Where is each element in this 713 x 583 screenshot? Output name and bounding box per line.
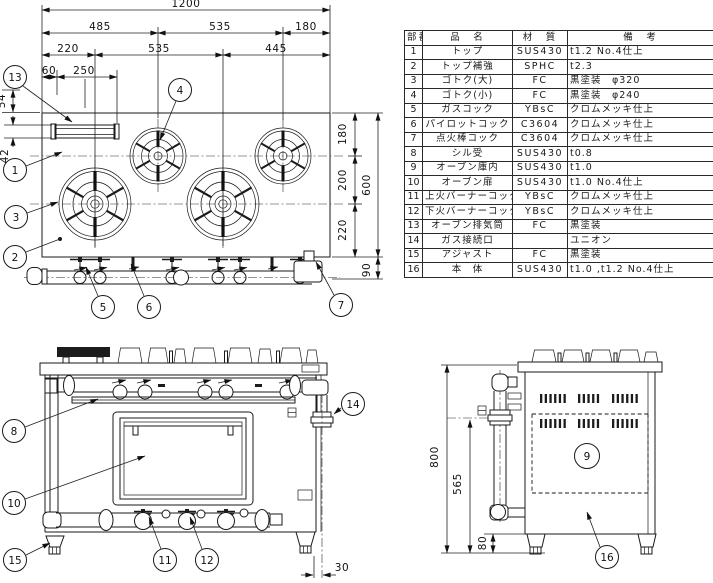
cell-no: 16	[405, 263, 423, 278]
cell-no: 11	[405, 190, 423, 205]
cell-no: 6	[405, 118, 423, 133]
callout-16: 16	[587, 512, 619, 569]
cell-material: SPHC	[513, 60, 568, 75]
manifold-end-cap	[27, 268, 42, 285]
callout-3: 3	[5, 202, 59, 229]
table-row: 13オーブン排気筒FC黒塗装	[405, 219, 713, 234]
parts-table: 部番 品 名 材 質 備 考 1トップSUS430t1.2 No.4仕上2トップ…	[404, 30, 713, 278]
table-row: 1トップSUS430t1.2 No.4仕上	[405, 45, 713, 60]
cell-no: 5	[405, 103, 423, 118]
front-top-slab	[40, 363, 327, 375]
dim-depth-200: 200	[337, 169, 349, 191]
cell-remarks: t1.2 No.4仕上	[568, 45, 713, 60]
cell-no: 14	[405, 234, 423, 249]
front-manifold	[45, 376, 317, 400]
side-legs	[527, 534, 656, 554]
front-view-dimensions: 30	[301, 556, 349, 578]
cell-material: FC	[513, 248, 568, 263]
front-bottom-rail	[56, 509, 282, 531]
table-row: 11上火バーナーコックYBsCクロムメッキ仕上	[405, 190, 713, 205]
table-row: 6パイロットコックC3604クロムメッキ仕上	[405, 118, 713, 133]
callout-15-number: 15	[8, 555, 21, 567]
cell-name: パイロットコック	[423, 118, 513, 133]
cell-remarks: クロムメッキ仕上	[568, 103, 713, 118]
cell-remarks: クロムメッキ仕上	[568, 205, 713, 220]
sill-receiver	[72, 397, 295, 403]
cell-name: オーブン排気筒	[423, 219, 513, 234]
table-row: 8シル受SUS430t0.8	[405, 147, 713, 162]
cell-name: ゴトク(小)	[423, 89, 513, 104]
dim-width-60: 60	[42, 65, 57, 77]
table-row: 9オーブン庫内SUS430t1.0	[405, 161, 713, 176]
cell-no: 2	[405, 60, 423, 75]
table-row: 14ガス接続口ユニオン	[405, 234, 713, 249]
table-row: 16本 体SUS430t1.0 ,t1.2 No.4仕上	[405, 263, 713, 278]
cell-no: 10	[405, 176, 423, 191]
dim-width-180: 180	[295, 21, 317, 33]
cell-name: ガスコック	[423, 103, 513, 118]
side-vent-slots	[540, 394, 638, 428]
cell-remarks: ユニオン	[568, 234, 713, 249]
dim-back-54: 54	[0, 94, 8, 109]
front-right-leg	[296, 532, 315, 553]
dim-inlet-height: 565	[452, 473, 464, 495]
cell-material	[513, 234, 568, 249]
callout-6-number: 6	[146, 302, 153, 314]
cell-material: SUS430	[513, 45, 568, 60]
cell-name: アジャスト	[423, 248, 513, 263]
callout-8-number: 8	[11, 426, 18, 438]
cell-no: 1	[405, 45, 423, 60]
dim-width-445: 445	[265, 43, 287, 55]
callout-9: 9	[575, 444, 600, 469]
table-row: 3ゴトク(大)FC黒塗装 φ320	[405, 74, 713, 89]
top-view-dimensions: 1200 485 535 180 220 535 445 60 250 54	[0, 0, 383, 279]
callout-2-number: 2	[12, 252, 19, 264]
cell-name: オーブン扉	[423, 176, 513, 191]
callout-14-number: 14	[346, 399, 360, 411]
cell-material: YBsC	[513, 190, 568, 205]
cell-remarks: t0.8	[568, 147, 713, 162]
drawing-sheet: 1200 485 535 180 220 535 445 60 250 54	[0, 0, 713, 583]
cell-no: 15	[405, 248, 423, 263]
cell-name: ゴトク(大)	[423, 74, 513, 89]
dim-overall-height: 800	[429, 446, 441, 468]
cell-remarks: 黒塗装 φ320	[568, 74, 713, 89]
cell-material: FC	[513, 219, 568, 234]
front-view: 30 8 10 11 12 15	[3, 347, 365, 578]
cell-remarks: 黒塗装 φ240	[568, 89, 713, 104]
table-row: 15アジャストFC黒塗装	[405, 248, 713, 263]
cell-no: 9	[405, 161, 423, 176]
callout-10: 10	[3, 456, 146, 515]
col-header-material: 材 質	[513, 31, 568, 46]
manifold-fitting	[174, 270, 189, 285]
callout-4: 4	[160, 79, 192, 141]
cell-no: 4	[405, 89, 423, 104]
cell-name: トップ補強	[423, 60, 513, 75]
col-header-no: 部番	[405, 31, 423, 46]
cell-name: トップ	[423, 45, 513, 60]
cell-material: C3604	[513, 118, 568, 133]
table-row: 4ゴトク(小)FC黒塗装 φ240	[405, 89, 713, 104]
dim-overall-width: 1200	[171, 0, 200, 10]
top-view: 1200 485 535 180 220 535 445 60 250 54	[0, 0, 383, 319]
callout-6: 6	[131, 264, 161, 319]
cell-remarks: t1.0 No.4仕上	[568, 176, 713, 191]
front-grates	[57, 347, 318, 363]
dim-width-220: 220	[57, 43, 79, 55]
cell-remarks: クロムメッキ仕上	[568, 118, 713, 133]
table-row: 5ガスコックYBsCクロムメッキ仕上	[405, 103, 713, 118]
oven-door	[113, 412, 253, 505]
rating-plate	[298, 490, 312, 500]
callout-1-number: 1	[12, 165, 19, 177]
cell-material: FC	[513, 89, 568, 104]
parts-table-header: 部番 品 名 材 質 備 考	[405, 31, 713, 46]
callout-11-number: 11	[158, 555, 171, 567]
cell-material: SUS430	[513, 161, 568, 176]
callout-12-number: 12	[200, 555, 213, 567]
cell-name: 点火棒コック	[423, 132, 513, 147]
oven-exhaust-plan	[51, 124, 119, 139]
table-row: 12下火バーナーコックYBsCクロムメッキ仕上	[405, 205, 713, 220]
dim-width-485: 485	[89, 21, 111, 33]
cell-name: シル受	[423, 147, 513, 162]
cell-remarks: t1.0 ,t1.2 No.4仕上	[568, 263, 713, 278]
callout-13: 13	[4, 66, 73, 123]
callout-10-number: 10	[7, 498, 20, 510]
cell-no: 8	[405, 147, 423, 162]
cell-material: SUS430	[513, 176, 568, 191]
cell-no: 7	[405, 132, 423, 147]
dim-width-535: 535	[209, 21, 231, 33]
side-view-dimensions: 800 565 80	[429, 365, 545, 553]
callout-3-number: 3	[13, 212, 20, 224]
cell-name: 下火バーナーコック	[423, 205, 513, 220]
col-header-remarks: 備 考	[568, 31, 713, 46]
dim-overall-depth: 600	[361, 174, 373, 196]
upper-burner-cock-knob	[134, 509, 152, 530]
cell-material: C3604	[513, 132, 568, 147]
gas-manifold-plan	[24, 251, 340, 285]
cell-remarks: t2.3	[568, 60, 713, 75]
cell-remarks: クロムメッキ仕上	[568, 190, 713, 205]
parts-table-body: 1トップSUS430t1.2 No.4仕上2トップ補強SPHCt2.33ゴトク(…	[405, 45, 713, 277]
dim-width-535b: 535	[148, 43, 170, 55]
side-gas-pipe	[447, 370, 525, 522]
callout-5-number: 5	[100, 302, 107, 314]
cell-remarks: t1.0	[568, 161, 713, 176]
cell-remarks: 黒塗装	[568, 219, 713, 234]
cell-material: SUS430	[513, 147, 568, 162]
cell-name: 本 体	[423, 263, 513, 278]
dim-pipe-offset-30: 30	[335, 562, 350, 574]
callout-4-number: 4	[177, 85, 184, 97]
cell-material: YBsC	[513, 205, 568, 220]
callout-1: 1	[4, 152, 63, 182]
dim-width-250: 250	[73, 65, 95, 77]
dim-leg-height: 80	[477, 536, 489, 551]
dim-manifold-90: 90	[361, 263, 373, 278]
callout-15: 15	[4, 543, 51, 572]
side-top-slab	[518, 362, 662, 372]
cell-name: ガス接続口	[423, 234, 513, 249]
col-header-name: 品 名	[423, 31, 513, 46]
cell-material: FC	[513, 74, 568, 89]
ignition-cock-fitting	[304, 251, 314, 262]
dim-depth-180: 180	[337, 123, 349, 145]
callout-2: 2	[4, 237, 63, 269]
table-row: 10オーブン扉SUS430t1.0 No.4仕上	[405, 176, 713, 191]
cell-name: オーブン庫内	[423, 161, 513, 176]
callout-13-number: 13	[8, 72, 21, 84]
dim-depth-220: 220	[337, 219, 349, 241]
cell-material: SUS430	[513, 263, 568, 278]
cell-name: 上火バーナーコック	[423, 190, 513, 205]
top-right-plate	[302, 365, 319, 372]
callout-11: 11	[149, 517, 177, 572]
side-grates	[532, 350, 658, 362]
cell-remarks: 黒塗装	[568, 248, 713, 263]
cell-no: 12	[405, 205, 423, 220]
callout-7-number: 7	[338, 300, 345, 312]
cell-remarks: クロムメッキ仕上	[568, 132, 713, 147]
manifold-elbow	[294, 261, 322, 282]
cell-no: 13	[405, 219, 423, 234]
cell-no: 3	[405, 74, 423, 89]
callout-9-number: 9	[584, 451, 591, 463]
cell-material: YBsC	[513, 103, 568, 118]
side-view: 800 565 80 9 16	[429, 350, 662, 569]
table-row: 7点火棒コックC3604クロムメッキ仕上	[405, 132, 713, 147]
front-burner-knobs	[112, 380, 294, 399]
table-row: 2トップ補強SPHCt2.3	[405, 60, 713, 75]
callout-16-number: 16	[600, 552, 614, 564]
callout-14: 14	[334, 393, 365, 416]
